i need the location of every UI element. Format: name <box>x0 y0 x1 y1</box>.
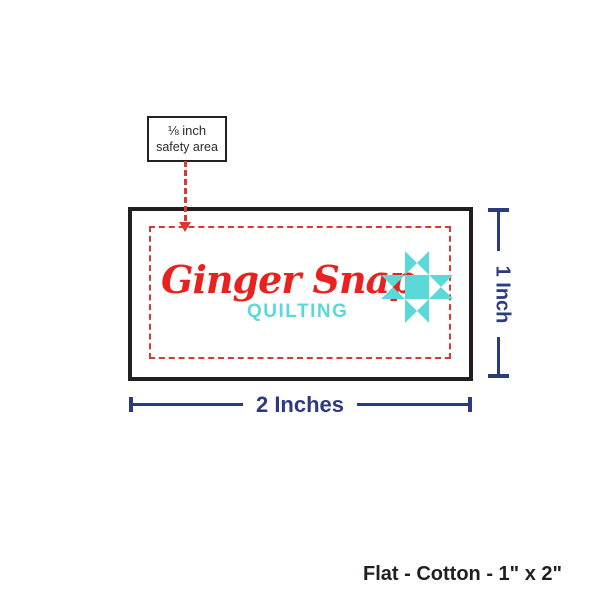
brand-subtitle-text: QUILTING <box>247 301 348 323</box>
width-dimension-tick-left <box>129 397 133 412</box>
product-caption: Flat - Cotton - 1" x 2" <box>363 563 562 586</box>
label-spec-diagram: ⅛ inch safety area Ginger Snap QUILTING … <box>0 0 600 600</box>
height-dimension-cap-bottom <box>488 374 509 378</box>
brand-name-text: Ginger Snap <box>161 257 415 302</box>
width-dimension-tick-right <box>468 397 472 412</box>
height-dimension-text: 1 Inch <box>490 265 513 323</box>
quilt-star-icon <box>381 251 453 323</box>
callout-leader-line <box>184 161 187 221</box>
width-dimension-text: 2 Inches <box>256 392 344 418</box>
callout-arrow-down-icon <box>179 222 191 232</box>
safety-area-callout: ⅛ inch safety area <box>147 116 227 162</box>
height-dimension-label: 1 Inch <box>481 251 522 337</box>
width-dimension-label: 2 Inches <box>243 387 357 422</box>
callout-line2: safety area <box>156 139 218 156</box>
callout-line1: ⅛ inch <box>168 122 206 140</box>
height-dimension-cap-top <box>488 208 509 212</box>
